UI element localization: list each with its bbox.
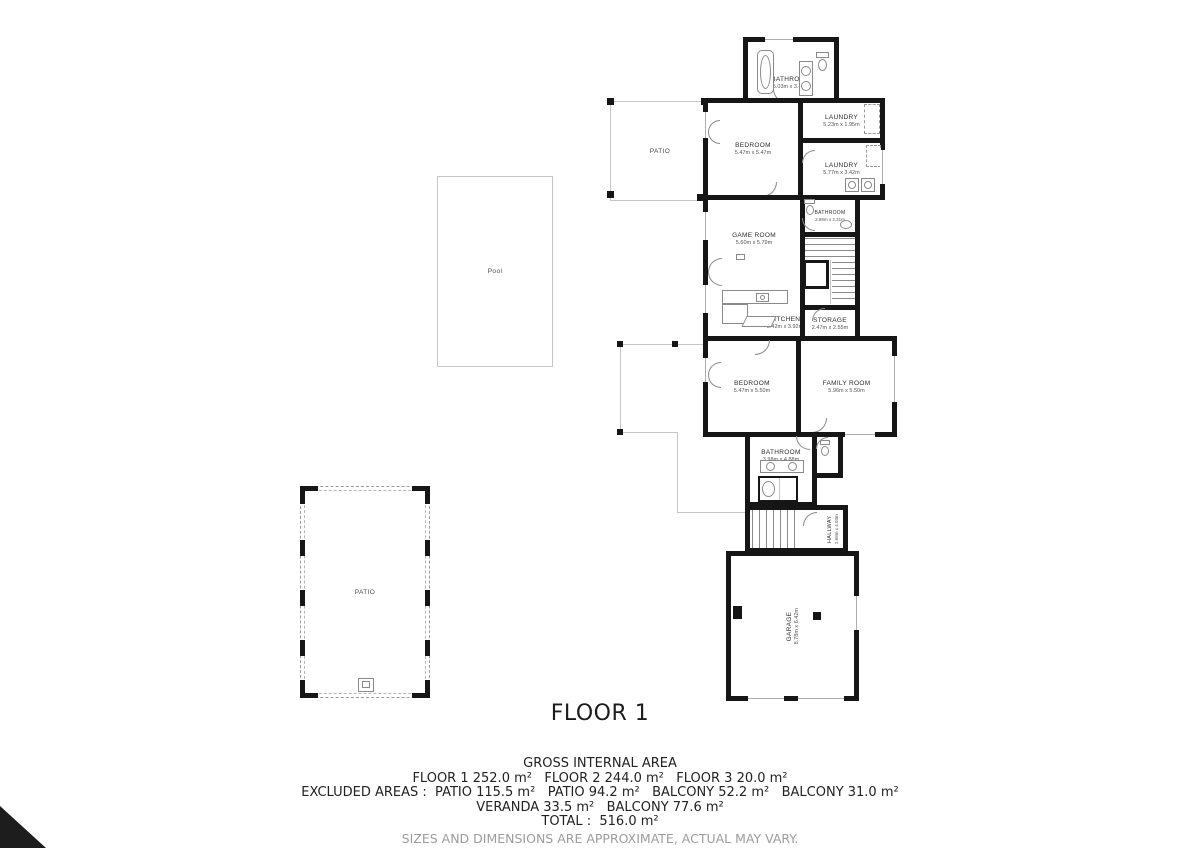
- summary-line: VERANDA 33.5 m² BALCONY 77.6 m²: [0, 801, 1200, 816]
- room-dims: 5.47m x 5.47m: [735, 150, 771, 156]
- patio-corner-post: [425, 486, 430, 504]
- veranda-line: [620, 344, 621, 433]
- room-label: GAME ROOM: [732, 232, 776, 239]
- patio-side-post: [425, 590, 430, 606]
- floorplan-page: Pool PATIO PATIO BATHROOM 5.03m x 3.42m: [0, 0, 1200, 848]
- room-label: GARAGE: [786, 611, 793, 641]
- page-corner-accent: [0, 806, 46, 848]
- summary-line: FLOOR 1 252.0 m² FLOOR 2 244.0 m² FLOOR …: [0, 772, 1200, 787]
- appliance-dashed-icon: [864, 104, 880, 134]
- dryer-drum-icon: [864, 181, 872, 189]
- pool-label: Pool: [488, 268, 503, 275]
- toilet-tank-icon: [804, 199, 815, 204]
- room-dims: 2.47m x 2.55m: [812, 325, 848, 331]
- patio-corner-post: [300, 680, 305, 698]
- window: [880, 150, 885, 184]
- sink-icon: [788, 462, 797, 471]
- patio-top-area: PATIO: [610, 101, 710, 201]
- toilet-bowl-icon: [806, 205, 814, 215]
- veranda-line: [620, 344, 705, 345]
- room-dims: 5.47m x 5.50m: [734, 388, 770, 394]
- window: [703, 358, 708, 382]
- window: [703, 112, 708, 138]
- stairs-icon: [832, 262, 855, 304]
- room-label: HALLWAY: [827, 515, 833, 542]
- room-label: BEDROOM: [735, 142, 771, 149]
- patio-corner-post: [425, 680, 430, 698]
- stair-landing: [803, 260, 829, 289]
- window: [892, 356, 897, 402]
- room-dims: 8.78m x 6.42m: [794, 608, 800, 644]
- veranda-post: [617, 341, 623, 347]
- sink-icon: [801, 66, 811, 76]
- patio-bottom-area: PATIO: [300, 486, 430, 698]
- kitchen-island-icon: [741, 316, 776, 327]
- window: [703, 212, 708, 240]
- toilet-bowl-icon: [818, 59, 827, 71]
- room-garage: GARAGE 8.78m x 6.42m: [726, 551, 859, 701]
- kitchen-counter-icon: [722, 290, 788, 304]
- patio-inner-line: [304, 490, 426, 694]
- patio-post: [607, 191, 614, 198]
- floor-title: FLOOR 1: [0, 701, 1200, 726]
- veranda-line: [677, 432, 678, 513]
- veranda-post: [672, 341, 678, 347]
- veranda-post: [617, 429, 623, 435]
- bathtub-basin-icon: [760, 55, 771, 89]
- window: [845, 432, 875, 437]
- patio-side-post: [300, 640, 305, 656]
- stair-divider-line: [830, 260, 831, 304]
- garage-pier-post: [733, 606, 742, 619]
- sink-icon: [840, 220, 852, 229]
- summary-heading: GROSS INTERNAL AREA: [0, 757, 1200, 772]
- room-bedroom-top: BEDROOM 5.47m x 5.47m: [703, 98, 803, 200]
- sink-icon: [766, 462, 775, 471]
- sink-icon: [801, 81, 811, 91]
- washer-drum-icon: [848, 181, 856, 189]
- room-label: LAUNDRY: [825, 162, 858, 169]
- disclaimer-text: SIZES AND DIMENSIONS ARE APPROXIMATE, AC…: [0, 832, 1200, 846]
- patio-post: [607, 98, 614, 105]
- summary-line: TOTAL : 516.0 m²: [0, 815, 1200, 830]
- room-dims: 2.68m x 4.03m: [834, 514, 839, 544]
- area-summary: GROSS INTERNAL AREA FLOOR 1 252.0 m² FLO…: [0, 757, 1200, 846]
- tub-basin-icon: [762, 481, 775, 497]
- toilet-tank-icon: [816, 52, 829, 58]
- room-label: FAMILY ROOM: [823, 380, 871, 387]
- kitchen-sink-bowl-icon: [760, 295, 765, 300]
- veranda-line: [677, 512, 745, 513]
- patio-gate-inner-icon: [362, 681, 370, 688]
- room-label: LAUNDRY: [825, 114, 858, 121]
- veranda-line: [620, 432, 678, 433]
- window: [765, 37, 793, 42]
- shower-divider-line: [779, 478, 780, 500]
- room-dims: 5.23m x 1.95m: [823, 122, 859, 128]
- room-dims: 5.96m x 5.50m: [828, 388, 864, 394]
- appliance-dashed-icon: [866, 145, 881, 167]
- garage-column-post: [813, 612, 821, 620]
- patio-side-post: [300, 590, 305, 606]
- room-label: BEDROOM: [734, 380, 770, 387]
- room-label: BATHROOM: [761, 449, 800, 456]
- room-dims: 5.60m x 5.79m: [736, 240, 772, 246]
- patio-side-post: [425, 640, 430, 656]
- table-icon: [736, 254, 745, 260]
- summary-line: EXCLUDED AREAS : PATIO 115.5 m² PATIO 94…: [0, 786, 1200, 801]
- room-label: BATHROOM: [815, 210, 846, 216]
- room-dims: 5.77m x 3.42m: [823, 170, 859, 176]
- window: [703, 285, 708, 313]
- patio-top-label: PATIO: [650, 148, 671, 155]
- pool-area: Pool: [437, 176, 553, 367]
- window: [853, 596, 859, 630]
- patio-side-post: [425, 540, 430, 556]
- stairs-icon: [805, 238, 855, 262]
- stairs-icon: [752, 510, 800, 548]
- patio-corner-post: [300, 486, 305, 504]
- patio-side-post: [300, 540, 305, 556]
